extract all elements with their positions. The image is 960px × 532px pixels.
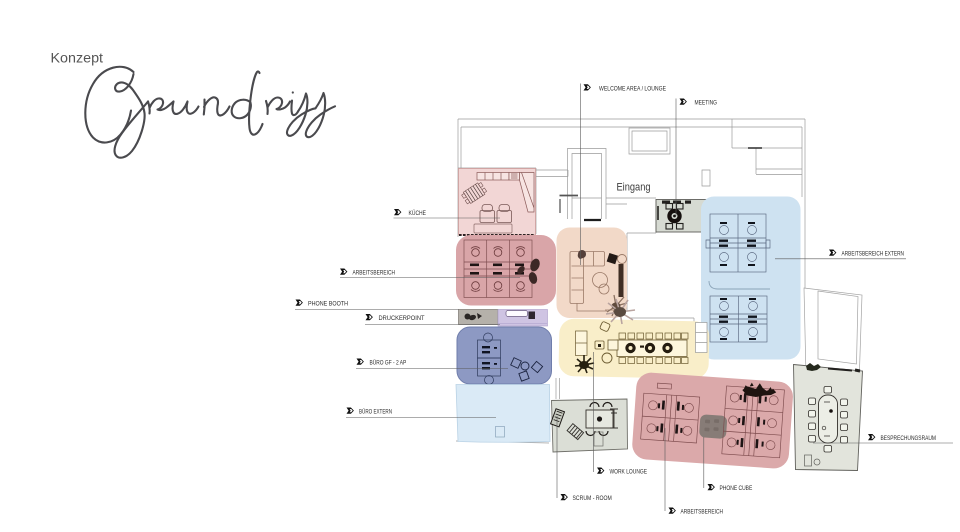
svg-text:WELCOME AREA / LOUNGE: WELCOME AREA / LOUNGE: [599, 85, 667, 92]
svg-text:PHONE BOOTH: PHONE BOOTH: [308, 300, 348, 307]
svg-text:WORK LOUNGE: WORK LOUNGE: [610, 468, 648, 475]
svg-text:BÜRO GF - 2 AP: BÜRO GF - 2 AP: [370, 359, 407, 367]
svg-text:Konzept: Konzept: [51, 51, 104, 66]
svg-text:SCRUM - ROOM: SCRUM - ROOM: [573, 495, 612, 502]
svg-text:BÜRO EXTERN: BÜRO EXTERN: [359, 407, 392, 415]
svg-text:KÜCHE: KÜCHE: [409, 209, 427, 217]
svg-text:BESPRECHUNGSRAUM: BESPRECHUNGSRAUM: [881, 435, 937, 442]
svg-text:ARBEITSBEREICH: ARBEITSBEREICH: [353, 270, 396, 277]
svg-text:DRUCKERPOINT: DRUCKERPOINT: [379, 315, 425, 322]
svg-text:MEETING: MEETING: [695, 99, 718, 106]
svg-text:PHONE CUBE: PHONE CUBE: [720, 485, 753, 492]
svg-text:ARBEITSBEREICH EXTERN: ARBEITSBEREICH EXTERN: [842, 250, 905, 257]
svg-text:Eingang: Eingang: [617, 182, 651, 194]
svg-text:ARBEITSBEREICH: ARBEITSBEREICH: [681, 508, 724, 515]
